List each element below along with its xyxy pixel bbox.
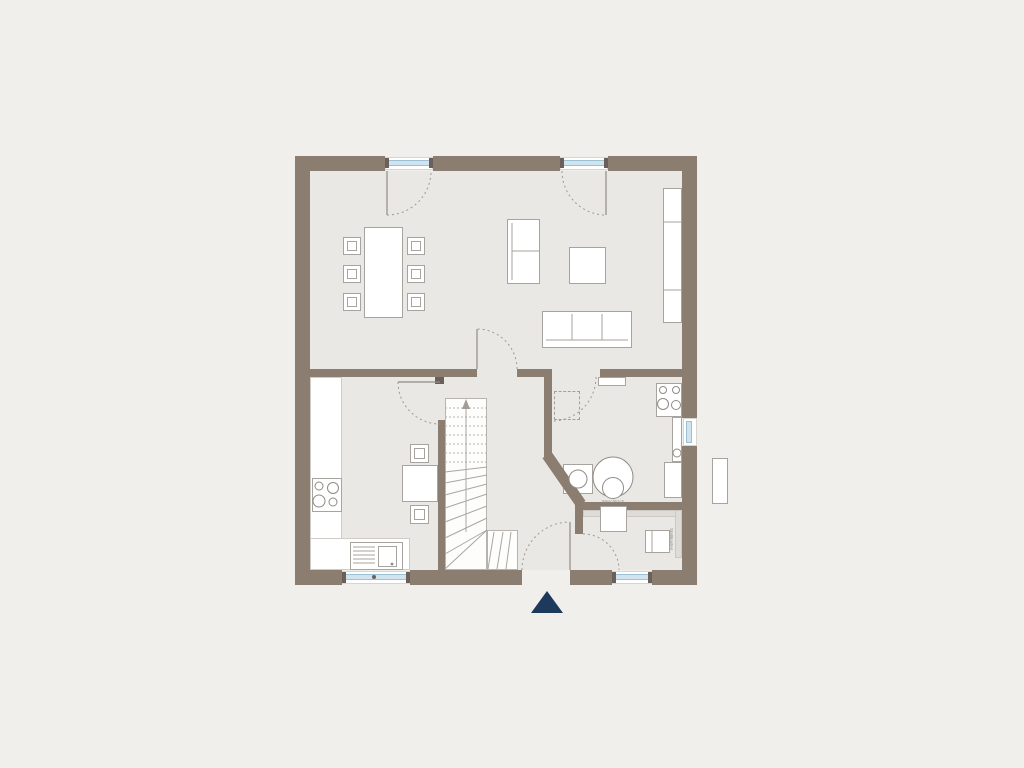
dining-chair [343, 265, 361, 283]
wall-left [295, 156, 310, 585]
sofa-two-seat [507, 219, 540, 284]
appliance-placeholder-dashed [554, 391, 580, 420]
dining-chair [407, 265, 425, 283]
kitchen-table [402, 465, 438, 502]
wall-top-2 [433, 156, 560, 171]
kitchen-window-cap-icon [406, 572, 410, 583]
kitchen-chair [410, 444, 429, 463]
dining-chair [343, 293, 361, 311]
wc-window-glass [614, 574, 650, 580]
kitchen-door-hinge-tab [435, 377, 444, 384]
washing-machine [563, 464, 593, 494]
wall-shelf-unit [663, 188, 682, 323]
stove-cooktop [312, 478, 342, 512]
wall-bottom-2 [410, 570, 522, 585]
coffee-table [569, 247, 606, 284]
kitchen-window-cap-icon [342, 572, 346, 583]
utility-cooktop-unit [656, 383, 682, 417]
kitchen-chair [410, 505, 429, 524]
staircase [445, 398, 487, 570]
floor-plan: Waschtisch Spülkasten [295, 156, 697, 585]
dining-table [364, 227, 403, 318]
wall-interior-horizontal-3 [600, 369, 683, 377]
terrace-door-left-glass [387, 160, 431, 166]
terrace-door-right-jamb-icon [560, 158, 564, 168]
wall-interior-horizontal-1 [310, 369, 477, 377]
wall-right-1 [682, 156, 697, 418]
terrace-door-left-jamb-icon [429, 158, 433, 168]
dining-chair [343, 237, 361, 255]
dining-chair [407, 293, 425, 311]
exterior-fixture [712, 458, 728, 504]
wall-bottom-3 [570, 570, 612, 585]
utility-window-glass [686, 421, 692, 443]
wc-window-cap-icon [648, 572, 652, 583]
kitchen-window-glass [344, 574, 408, 580]
wc-vanity-counter-top [583, 510, 682, 517]
sofa-three-seat [542, 311, 632, 348]
utility-cabinet [664, 462, 682, 498]
utility-counter-strip [672, 417, 682, 462]
wc-toilet-label: Spülkasten [667, 528, 673, 552]
wc-sink [600, 506, 627, 532]
sink-basin [378, 546, 397, 567]
wall-hall-vertical [544, 377, 552, 459]
wall-staircase [438, 420, 445, 570]
wc-window-cap-icon [612, 572, 616, 583]
staircase-winder-extension [487, 530, 518, 570]
terrace-door-right-glass [562, 160, 606, 166]
wall-bottom-4 [652, 570, 697, 585]
wall-bottom-1 [295, 570, 342, 585]
wall-interior-horizontal-2 [517, 369, 552, 377]
terrace-door-right-jamb-icon [604, 158, 608, 168]
dining-chair [407, 237, 425, 255]
utility-sideboard [598, 377, 626, 386]
wall-right-2 [682, 446, 697, 585]
wc-vanity-counter-right [675, 510, 682, 558]
wc-sink-label: Waschtisch [595, 500, 631, 505]
terrace-door-left-jamb-icon [385, 158, 389, 168]
entrance-marker-icon [531, 591, 563, 613]
